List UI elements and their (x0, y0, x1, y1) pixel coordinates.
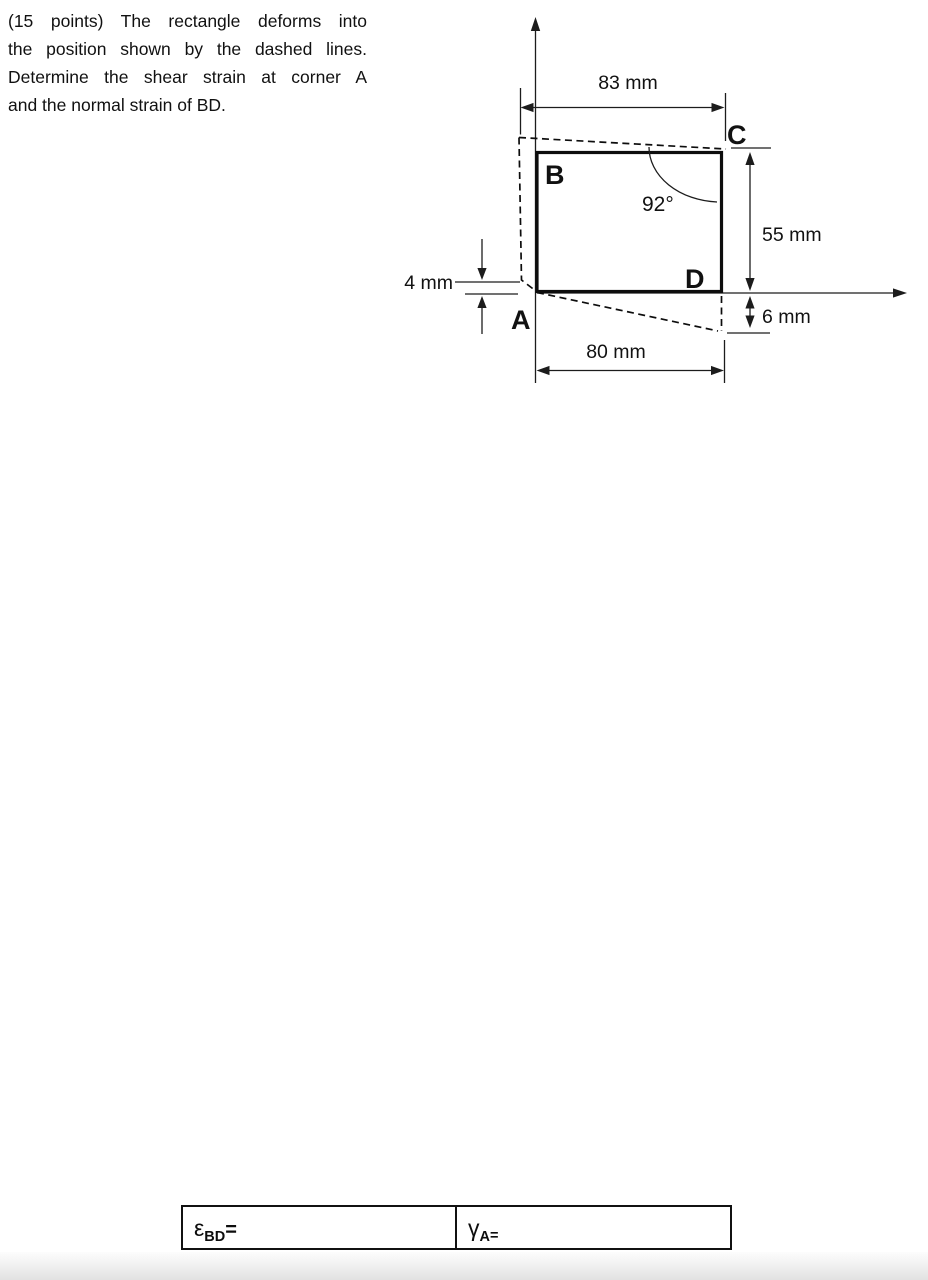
dim-left-offset-label: 4 mm (404, 272, 453, 294)
document-page: (15 points) The rectangle deforms into t… (0, 0, 928, 1280)
page-bottom-edge (0, 1252, 928, 1280)
corner-label-d: D (685, 264, 705, 294)
corner-label-c: C (727, 120, 747, 150)
dim-bottom-width-label: 80 mm (586, 341, 646, 363)
angle-label: 92° (642, 193, 674, 216)
dim-left-offset: 4 mm (404, 239, 520, 334)
corner-label-a: A (511, 305, 531, 335)
epsilon-subscript: BD (204, 1230, 225, 1245)
epsilon-bd-answer-cell: εBD= (183, 1207, 457, 1248)
dim-top-width-label: 83 mm (598, 72, 658, 94)
dim-right-height-label: 55 mm (762, 224, 822, 246)
gamma-equals: = (490, 1228, 498, 1244)
dim-right-offset: 6 mm (727, 296, 811, 333)
dim-top-width: 83 mm (521, 72, 726, 141)
deformed-top-edge (519, 138, 726, 150)
epsilon-equals: = (225, 1219, 237, 1242)
deformed-left-edge (519, 138, 537, 292)
dim-right-offset-label: 6 mm (762, 306, 811, 328)
deformed-bottom-edge (537, 293, 718, 332)
epsilon-symbol: ε (194, 1215, 204, 1242)
gamma-subscript: A (480, 1230, 490, 1245)
strain-diagram: 92° 83 mm 55 mm 6 mm (0, 0, 928, 400)
gamma-a-answer-cell: γA= (457, 1207, 730, 1248)
corner-label-b: B (545, 160, 565, 190)
gamma-symbol: γ (468, 1215, 480, 1242)
dim-bottom-width: 80 mm (537, 340, 725, 383)
x-axis-arrow-icon (893, 288, 907, 297)
dim-right-height: 55 mm (731, 148, 822, 291)
y-axis-arrow-icon (531, 17, 540, 31)
answer-table: εBD= γA= (181, 1205, 732, 1250)
